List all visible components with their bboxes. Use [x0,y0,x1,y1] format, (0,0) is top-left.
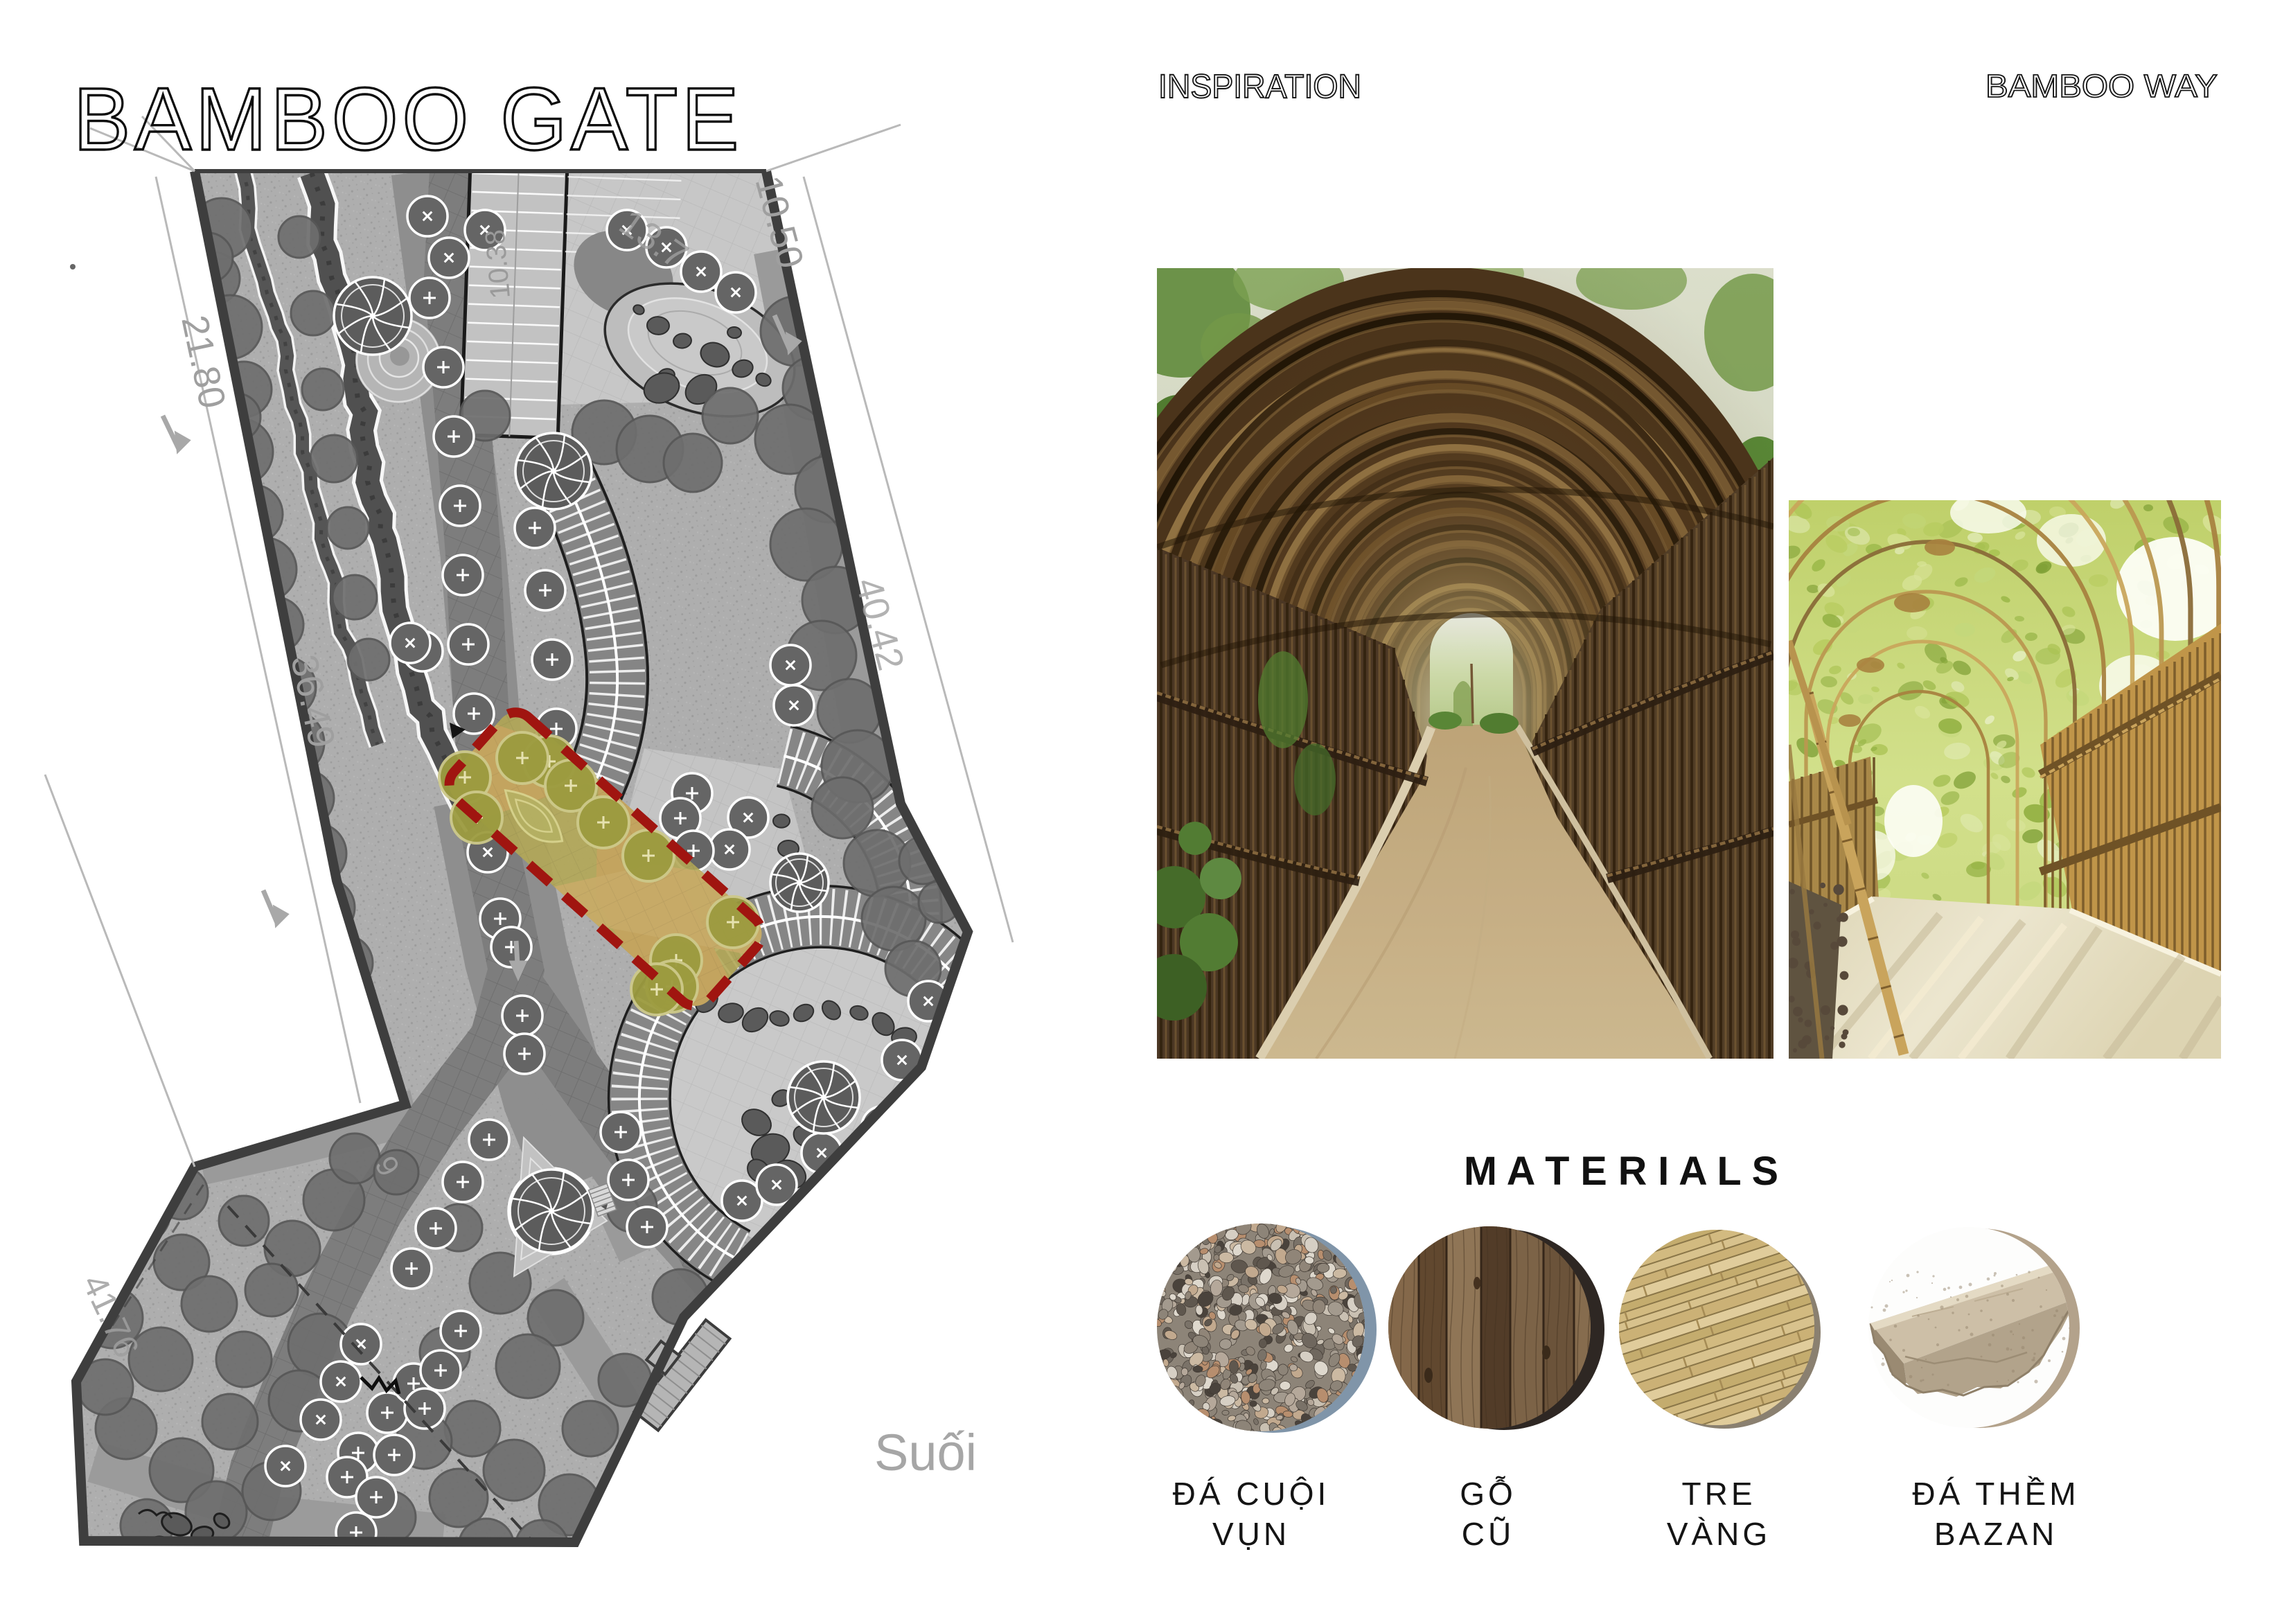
svg-text:BAZAN: BAZAN [1934,1516,2058,1552]
svg-text:M A T E R I A L S: M A T E R I A L S [1464,1149,1778,1194]
svg-text:CŨ: CŨ [1462,1516,1514,1552]
svg-text:ĐÁ THỀM: ĐÁ THỀM [1912,1476,2079,1512]
svg-text:10.38: 10.38 [479,228,516,300]
svg-text:BAMBOO GATE: BAMBOO GATE [73,70,743,169]
svg-text:BAMBOO WAY: BAMBOO WAY [1985,68,2218,104]
svg-text:INSPIRATION: INSPIRATION [1158,69,1361,105]
svg-text:ĐÁ CUỘI: ĐÁ CUỘI [1173,1476,1330,1512]
svg-text:TRE: TRE [1682,1476,1756,1512]
svg-text:VÀNG: VÀNG [1667,1516,1771,1552]
svg-text:VỤN: VỤN [1212,1516,1290,1552]
svg-text:Suối: Suối [874,1424,977,1481]
svg-text:GỖ: GỖ [1460,1476,1516,1512]
